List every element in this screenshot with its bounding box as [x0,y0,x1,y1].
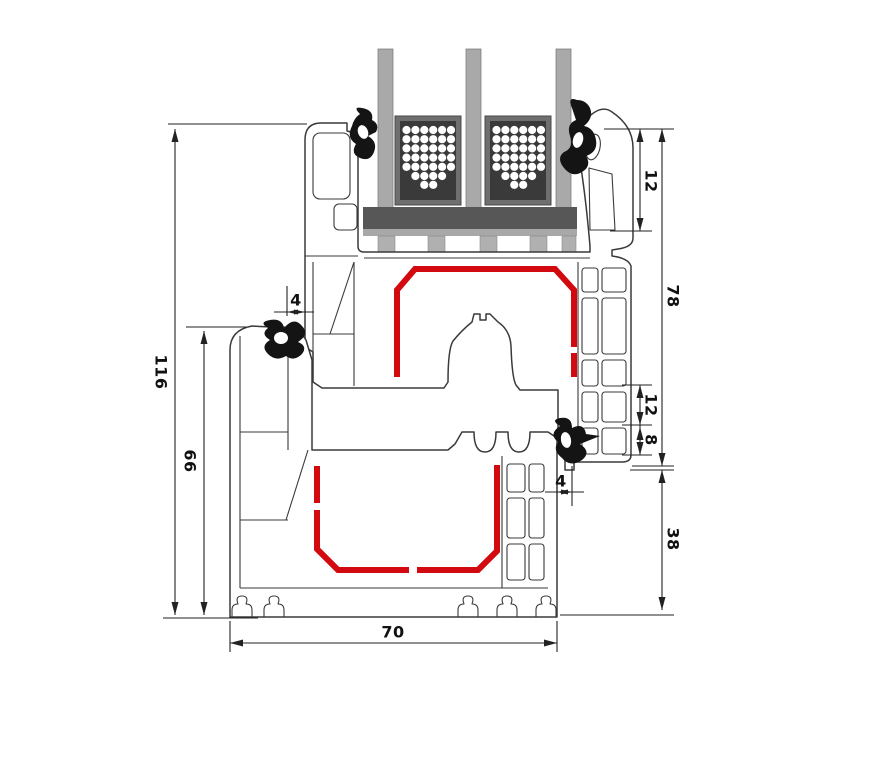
dim-label-total-height: 116 [152,355,171,390]
triple-glazing-unit [363,49,577,253]
glass-pane [466,49,481,228]
dim-label-frame-height: 66 [181,449,200,472]
bridge-supports [378,236,576,253]
glazing-bridge [363,229,577,236]
gasket-frame-rebate [263,320,305,359]
setting-block [363,207,577,229]
dim-label-sash-height: 78 [664,284,683,307]
dim-label-chamber-small: 8 [642,434,661,446]
glass-pane [378,49,393,228]
spacer-bar-icon [485,116,551,205]
dim-label-frame-face: 38 [664,527,683,550]
dim-label-chamber-mid: 12 [642,393,661,416]
dim-label-glazing-edge-cover: 12 [642,169,661,192]
dim-label-gap-right: 4 [555,472,567,491]
glass-pane [556,49,571,228]
dim-label-frame-width: 70 [381,623,404,642]
gasket-glazing-left [350,108,378,160]
technical-drawing-canvas: 116 66 4 12 78 12 8 4 38 70 [0,0,877,766]
profile-drawing [0,0,877,766]
spacer-bar-icon [395,116,461,205]
dim-label-gap-left: 4 [290,291,302,310]
